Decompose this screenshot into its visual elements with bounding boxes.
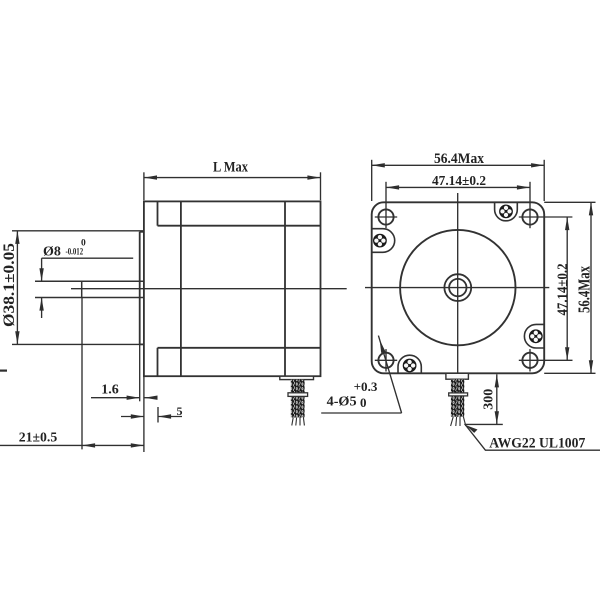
svg-text:AWG22 UL1007: AWG22 UL1007	[489, 435, 585, 451]
svg-text:4-Ø5: 4-Ø5	[327, 394, 357, 409]
svg-text:Ø8: Ø8	[43, 245, 61, 260]
svg-text:L Max: L Max	[213, 160, 248, 176]
svg-text:47.14±0.2: 47.14±0.2	[555, 264, 571, 316]
svg-text:5: 5	[177, 404, 183, 418]
svg-text:300: 300	[481, 389, 496, 410]
svg-text:47.14±0.2: 47.14±0.2	[432, 174, 486, 189]
svg-text:0: 0	[81, 239, 86, 249]
svg-text:21±0.5: 21±0.5	[19, 430, 58, 445]
svg-text:56.4Max: 56.4Max	[434, 151, 484, 167]
svg-text:0: 0	[360, 395, 367, 410]
svg-text:1.6: 1.6	[101, 383, 119, 398]
svg-text:Ø38.1±0.05: Ø38.1±0.05	[1, 243, 18, 327]
svg-text:-0.012: -0.012	[66, 248, 84, 258]
svg-text:+0.3: +0.3	[354, 380, 378, 394]
svg-text:56.4Max: 56.4Max	[575, 266, 594, 313]
